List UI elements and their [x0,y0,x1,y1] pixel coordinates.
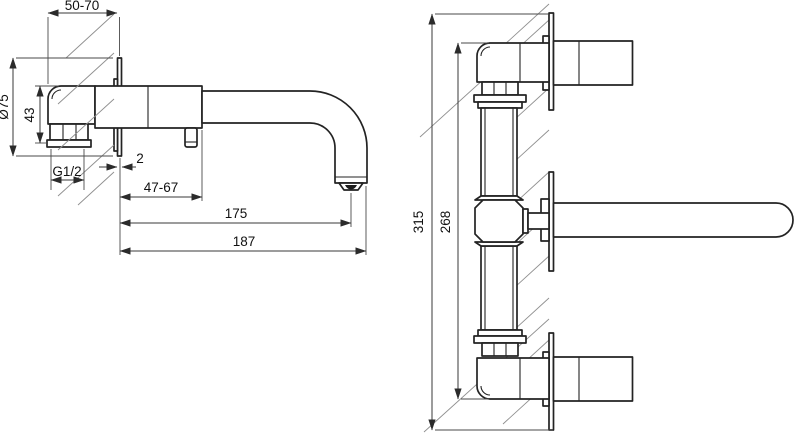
ring-top [478,102,522,108]
front-view: 315 268 [411,4,793,432]
flange-top [474,95,526,102]
hex-nut-bottom [482,343,518,356]
dim-label-overall-height: 315 [411,211,426,234]
spout-front [554,203,794,237]
faucet-technical-drawing: 315 268 [0,0,800,438]
elbow-top [477,43,549,82]
dim-label-depth-adjust-range: 50-70 [65,0,100,13]
spout-stub [528,213,549,229]
flange-bottom [474,336,526,343]
dim-label-body-depth-range: 47-67 [144,180,179,195]
hex-nut-top [482,82,518,95]
handle-bottom [554,357,633,401]
dim-label-inlet-elbow-height: 43 [22,107,37,122]
ring-bottom [478,330,522,336]
valve-stem-side [185,128,197,147]
dim-label-thread-size: G1/2 [52,164,81,179]
dim-label-overall-depth: 187 [233,234,256,249]
supply-pipe-lower [481,246,517,330]
technical-drawing-page: 315 268 [0,0,800,438]
spout-side [202,91,367,183]
union-flange-side [47,140,91,147]
mixer-block [475,200,523,242]
dim-label-spout-reach: 175 [225,206,248,221]
elbow-bottom [477,358,549,399]
dim-label-escutcheon-diameter: Ø75 [0,94,11,120]
dim-label-pipe-assembly-height: 268 [438,211,453,234]
dim-label-escutcheon-thickness: 2 [136,151,144,166]
supply-pipe-upper [481,108,517,196]
union-nut-side [50,124,88,140]
handle-top [554,41,633,85]
side-view: 50-70 Ø75 43 G1/2 2 47-67 175 187 [0,0,367,255]
